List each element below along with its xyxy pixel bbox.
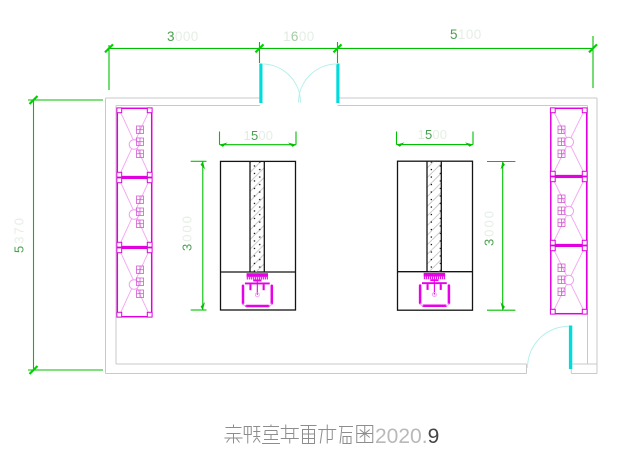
svg-text:1500: 1500 <box>244 128 274 143</box>
svg-text:1500: 1500 <box>418 127 448 142</box>
svg-text:5100: 5100 <box>450 27 482 42</box>
svg-text:2020.9: 2020.9 <box>375 425 439 448</box>
svg-text:1600: 1600 <box>283 29 315 44</box>
svg-text:3000: 3000 <box>180 214 195 251</box>
svg-text:3000: 3000 <box>167 29 199 44</box>
svg-text:3000: 3000 <box>482 209 497 246</box>
svg-text:5370: 5370 <box>12 216 27 253</box>
